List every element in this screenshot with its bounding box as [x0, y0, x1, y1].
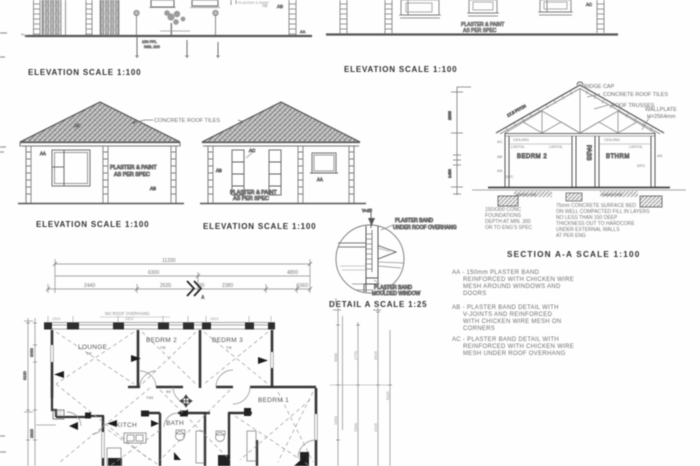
svg-text:KITCH: KITCH	[116, 422, 137, 429]
svg-text:AC: AC	[249, 148, 256, 153]
svg-text:CORNERS: CORNERS	[463, 326, 495, 332]
svg-text:H=2564mm: H=2564mm	[647, 114, 676, 120]
svg-text:1810: 1810	[210, 317, 218, 321]
svg-text:HARDCORE: HARDCORE	[602, 193, 623, 197]
svg-text:CEILING: CEILING	[513, 137, 529, 142]
svg-text:REINFORCED WITH CHICKEN WIRE: REINFORCED WITH CHICKEN WIRE	[463, 277, 574, 283]
svg-text:AA: AA	[300, 29, 306, 34]
svg-text:AC: AC	[586, 2, 592, 7]
svg-text:BATH: BATH	[166, 420, 184, 427]
svg-text:ELEVATION SCALE 1:100: ELEVATION SCALE 1:100	[36, 220, 149, 229]
svg-text:PLASTER & PAINT: PLASTER & PAINT	[110, 165, 157, 171]
svg-text:LINTOL: LINTOL	[629, 144, 644, 149]
svg-text:3050: 3050	[29, 347, 34, 357]
svg-text:6300: 6300	[148, 270, 159, 276]
svg-text:LINTOL: LINTOL	[549, 144, 564, 149]
svg-text:1810: 1810	[125, 317, 133, 321]
svg-text:3000: 3000	[333, 352, 338, 362]
svg-text:90: 90	[166, 389, 172, 394]
svg-text:2380: 2380	[222, 283, 233, 289]
svg-text:2315: 2315	[29, 428, 34, 438]
svg-text:AS PER SPEC: AS PER SPEC	[463, 28, 497, 34]
svg-text:BEDRM 1: BEDRM 1	[258, 397, 289, 404]
svg-text:DPC: DPC	[637, 163, 646, 168]
svg-text:AC: AC	[497, 139, 503, 144]
svg-text:ELEVATION SCALE 1:100: ELEVATION SCALE 1:100	[28, 68, 141, 77]
svg-text:AB - PLASTER BAND DETAIL WITH: AB - PLASTER BAND DETAIL WITH	[452, 305, 559, 311]
svg-text:WALLPLATE: WALLPLATE	[645, 107, 677, 113]
svg-text:V-JOINTS AND REINFORCED: V-JOINTS AND REINFORCED	[463, 312, 553, 318]
svg-text:TR: TR	[86, 351, 92, 356]
svg-text:MESH AROUND WINDOWS AND: MESH AROUND WINDOWS AND	[463, 284, 561, 290]
svg-text:AS PER SPEC: AS PER SPEC	[114, 172, 150, 178]
svg-text:DPC: DPC	[505, 174, 514, 179]
svg-text:NGL 100: NGL 100	[144, 44, 161, 49]
svg-text:PASS: PASS	[585, 145, 591, 161]
svg-text:REINFORCED WITH CHICKEN WIRE: REINFORCED WITH CHICKEN WIRE	[463, 344, 574, 350]
svg-text:AC - PLASTER BAND DETAIL WITH: AC - PLASTER BAND DETAIL WITH	[452, 337, 559, 343]
svg-text:AB: AB	[216, 168, 222, 173]
svg-text:AT PER ENG: AT PER ENG	[556, 233, 586, 239]
svg-text:TR: TR	[226, 345, 232, 350]
svg-text:4800: 4800	[287, 270, 298, 276]
svg-text:AA - 150mm PLASTER BAND: AA - 150mm PLASTER BAND	[452, 270, 540, 276]
svg-text:TR: TR	[160, 345, 166, 350]
svg-text:OR TO ENG'S SPEC: OR TO ENG'S SPEC	[485, 225, 533, 231]
svg-text:BTHRM: BTHRM	[606, 154, 630, 160]
svg-text:AS PER SPEC: AS PER SPEC	[233, 196, 269, 202]
svg-text:2500: 2500	[353, 422, 358, 432]
svg-text:AA: AA	[317, 177, 323, 182]
svg-text:3515: 3515	[373, 350, 378, 360]
svg-text:DOORS: DOORS	[463, 291, 487, 297]
svg-text:V=25: V=25	[362, 208, 373, 213]
svg-text:11200: 11200	[162, 258, 176, 264]
svg-text:90: 90	[333, 298, 338, 303]
svg-text:1510: 1510	[52, 317, 60, 321]
svg-text:AB: AB	[150, 186, 156, 191]
svg-text:UNDER ROOF OVERHANG: UNDER ROOF OVERHANG	[393, 225, 457, 231]
svg-text:AC: AC	[74, 123, 81, 128]
svg-text:AB: AB	[262, 3, 268, 8]
svg-text:8130: 8130	[22, 370, 27, 380]
svg-text:6115: 6115	[385, 391, 390, 400]
svg-text:LINTOL: LINTOL	[511, 144, 526, 149]
svg-text:HARDCORE: HARDCORE	[516, 193, 537, 197]
svg-text:2770: 2770	[353, 350, 358, 360]
svg-text:WITH CHICKEN WIRE MESH ON: WITH CHICKEN WIRE MESH ON	[463, 319, 562, 325]
svg-text:1490: 1490	[447, 168, 452, 178]
svg-text:RIDGE CAP: RIDGE CAP	[584, 84, 615, 90]
svg-text:1000: 1000	[333, 415, 338, 425]
svg-text:NO ROOF OVERHANG: NO ROOF OVERHANG	[105, 311, 150, 316]
svg-text:2440: 2440	[84, 283, 95, 289]
svg-text:2635: 2635	[160, 283, 171, 289]
svg-text:CONCRETE ROOF TILES: CONCRETE ROOF TILES	[154, 118, 220, 124]
svg-text:AA: AA	[657, 153, 663, 158]
svg-text:CEILING: CEILING	[604, 137, 620, 142]
svg-text:ELEVATION SCALE 1:100: ELEVATION SCALE 1:100	[344, 65, 457, 74]
svg-text:1560: 1560	[297, 283, 308, 289]
svg-text:CONCRETE ROOF TILES: CONCRETE ROOF TILES	[603, 92, 668, 98]
svg-text:AB: AB	[277, 4, 283, 9]
svg-text:AA: AA	[497, 168, 503, 173]
svg-text:2565: 2565	[447, 110, 452, 120]
svg-text:BEDRM 2: BEDRM 2	[146, 337, 177, 344]
svg-text:DETAIL A SCALE 1:25: DETAIL A SCALE 1:25	[329, 300, 427, 309]
svg-text:BEDRM 3: BEDRM 3	[212, 337, 243, 344]
svg-text:PLASTER BAND: PLASTER BAND	[395, 218, 433, 224]
svg-text:LOUNGE: LOUNGE	[78, 344, 108, 351]
svg-text:AB: AB	[497, 154, 503, 159]
svg-text:790: 790	[146, 395, 154, 400]
svg-text:AA: AA	[40, 151, 46, 156]
svg-text:MESH UNDER ROOF OVERHANG: MESH UNDER ROOF OVERHANG	[463, 351, 566, 357]
svg-text:17.5 PITCH: 17.5 PITCH	[506, 103, 527, 118]
svg-text:A: A	[201, 295, 205, 301]
svg-text:MOULDED WINDOW: MOULDED WINDOW	[372, 291, 421, 297]
svg-text:SECTION A-A SCALE 1:100: SECTION A-A SCALE 1:100	[507, 250, 640, 259]
svg-text:BEDRM 2: BEDRM 2	[517, 154, 547, 160]
svg-text:ELEVATION SCALE 1:100: ELEVATION SCALE 1:100	[203, 222, 316, 231]
svg-text:2315: 2315	[373, 422, 378, 432]
